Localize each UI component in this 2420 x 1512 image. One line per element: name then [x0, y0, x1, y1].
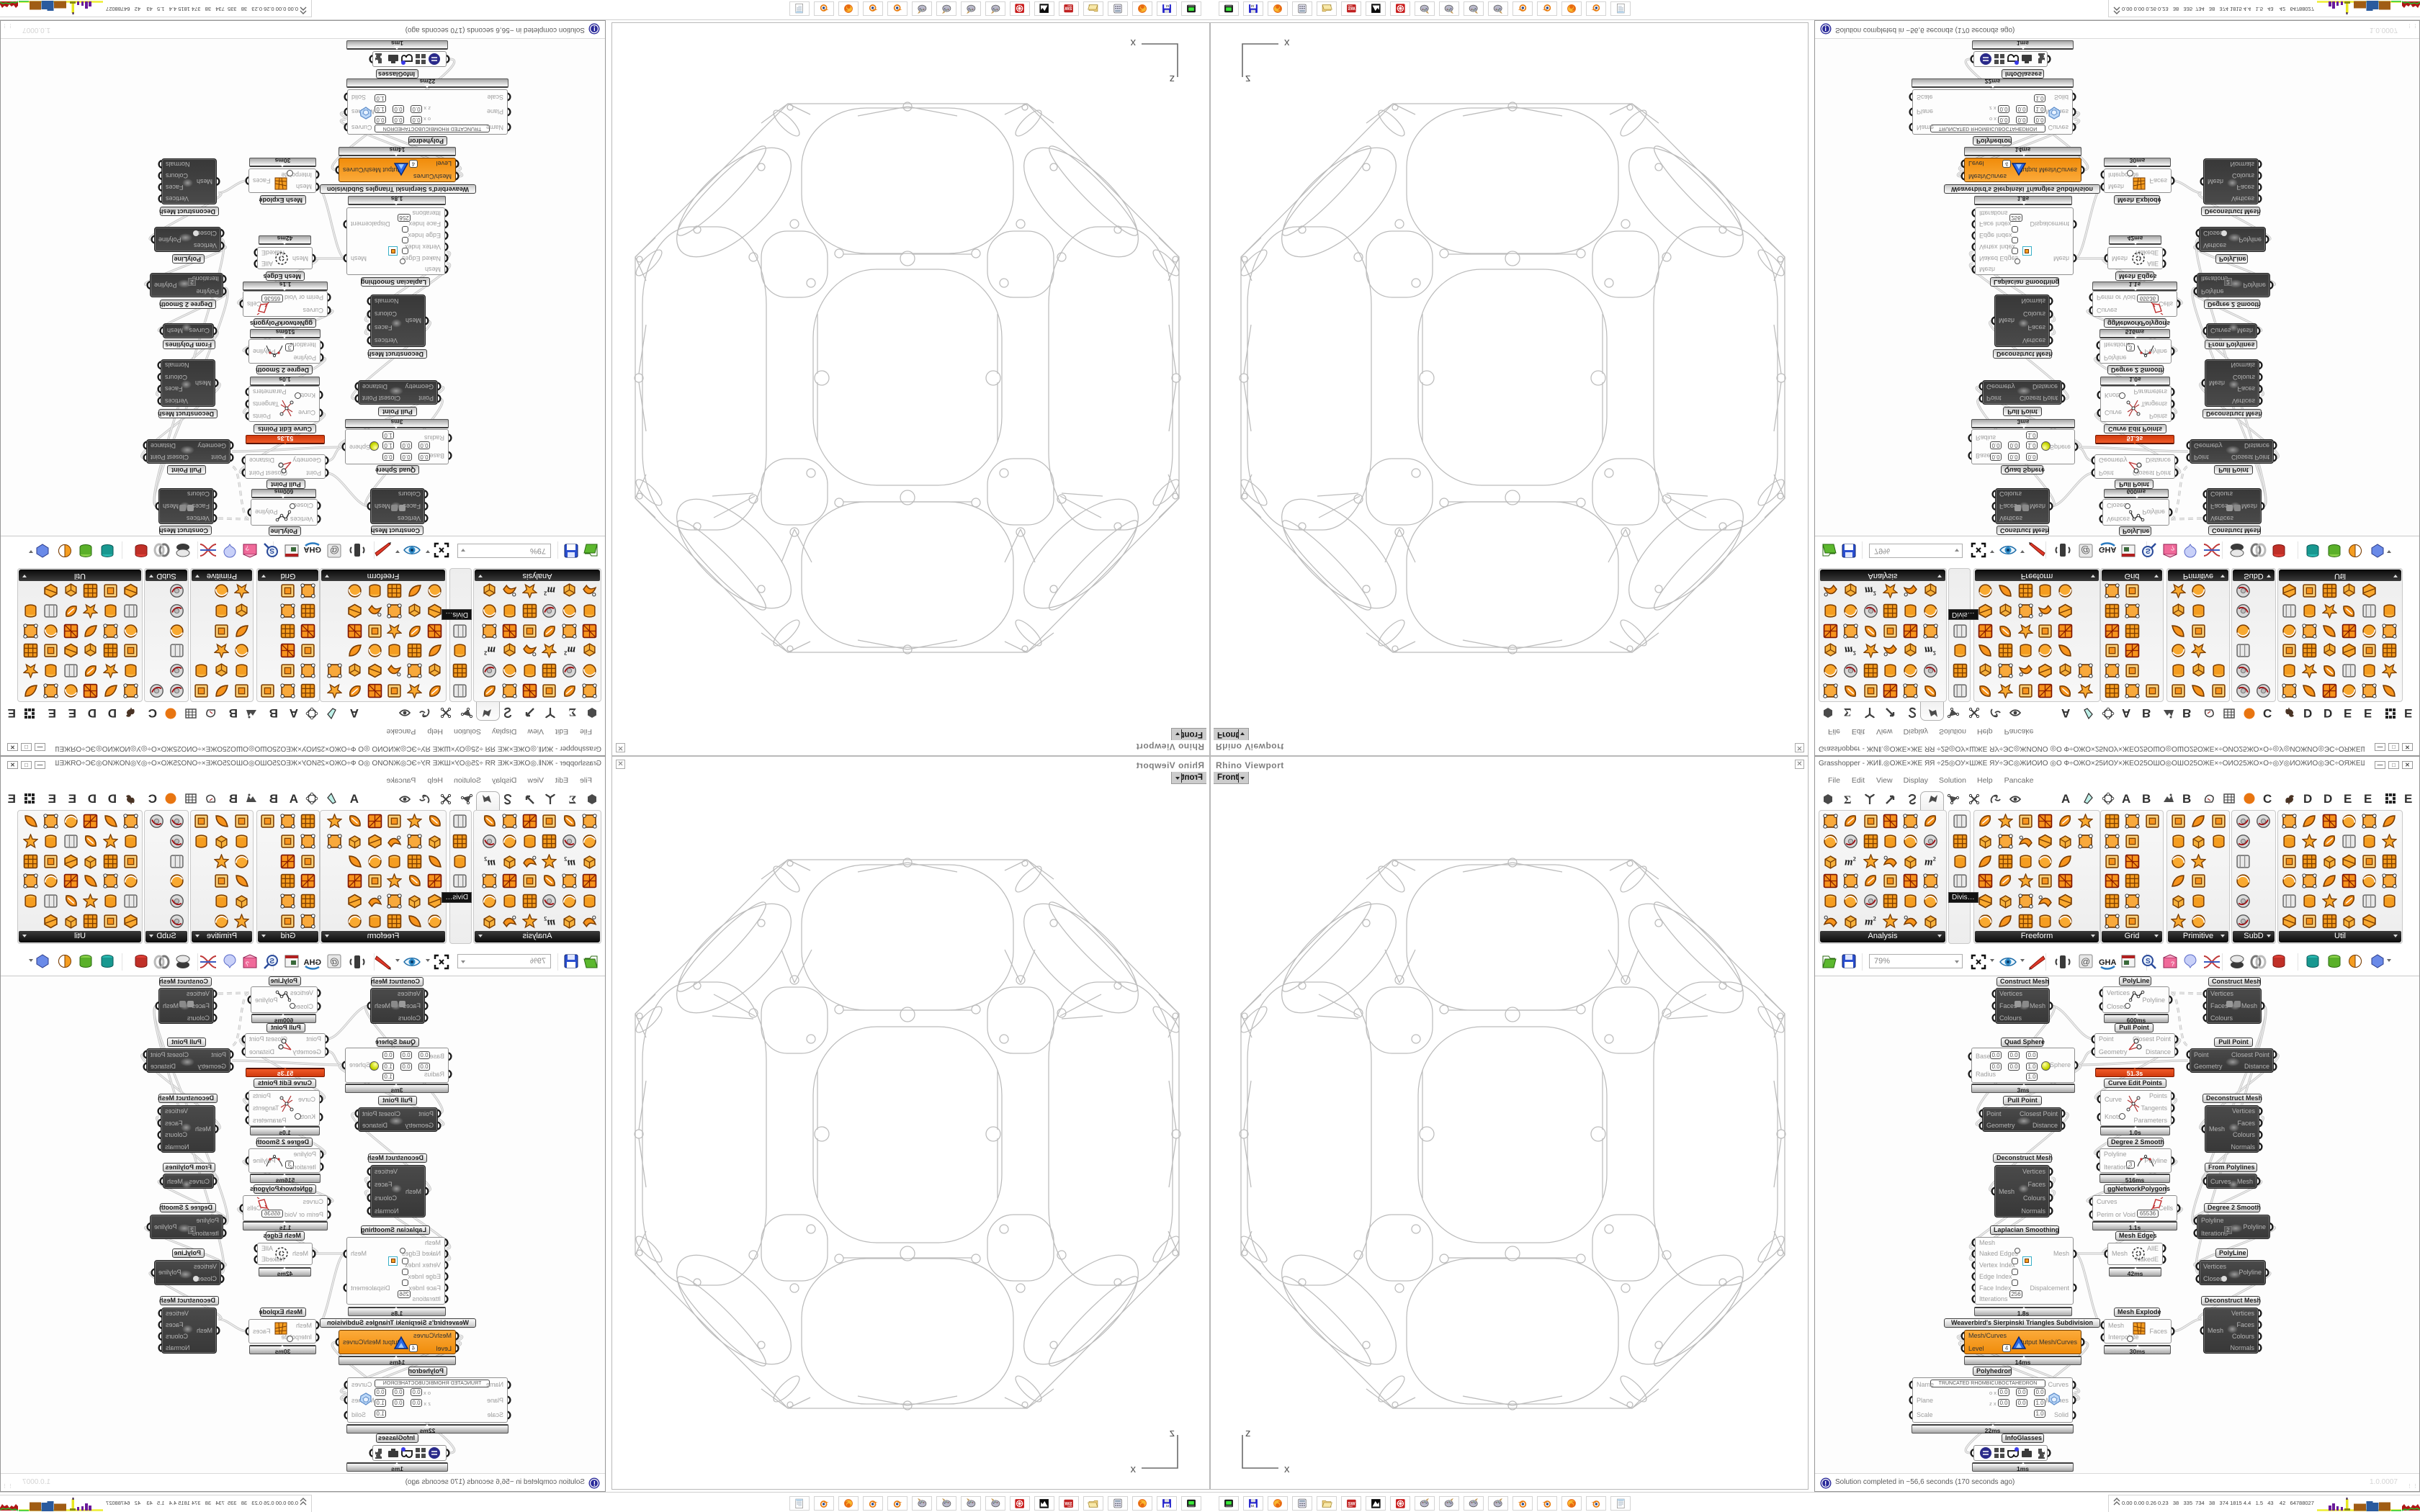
- svg-text:GHA: GHA: [2099, 958, 2117, 967]
- svg-text:64: 64: [1165, 4, 1169, 8]
- svg-text:!: !: [593, 1480, 596, 1488]
- svg-text:?: ?: [2171, 544, 2174, 552]
- svg-text:2020: 2020: [1067, 4, 1072, 7]
- svg-text:@: @: [2081, 545, 2090, 556]
- svg-text:GHA: GHA: [304, 958, 322, 967]
- svg-text:@: @: [2081, 956, 2090, 967]
- svg-text:!: !: [1824, 1480, 1827, 1488]
- svg-text:Σ: Σ: [1844, 706, 1851, 718]
- svg-text:S: S: [269, 546, 274, 554]
- svg-text:GHA: GHA: [2099, 545, 2117, 554]
- svg-text:64: 64: [1251, 1504, 1255, 1508]
- svg-text:@: @: [330, 545, 339, 556]
- svg-text:2020: 2020: [1348, 1505, 1353, 1508]
- svg-text:2020: 2020: [1067, 1505, 1072, 1508]
- svg-text:?: ?: [2171, 960, 2174, 968]
- svg-text:!: !: [1824, 24, 1827, 32]
- svg-text:Σ: Σ: [569, 706, 576, 718]
- svg-text:Σ: Σ: [569, 794, 576, 806]
- svg-text:!: !: [593, 24, 596, 32]
- svg-text:64: 64: [1165, 1504, 1169, 1508]
- svg-text:?: ?: [246, 544, 249, 552]
- svg-text:S: S: [2146, 546, 2151, 554]
- svg-text:@: @: [330, 956, 339, 967]
- svg-text:S: S: [2146, 958, 2151, 966]
- svg-text:S: S: [269, 958, 274, 966]
- svg-text:Σ: Σ: [1844, 794, 1851, 806]
- svg-text:2020: 2020: [1348, 4, 1353, 7]
- svg-text:GHA: GHA: [304, 545, 322, 554]
- svg-text:?: ?: [246, 960, 249, 968]
- svg-text:64: 64: [1251, 4, 1255, 8]
